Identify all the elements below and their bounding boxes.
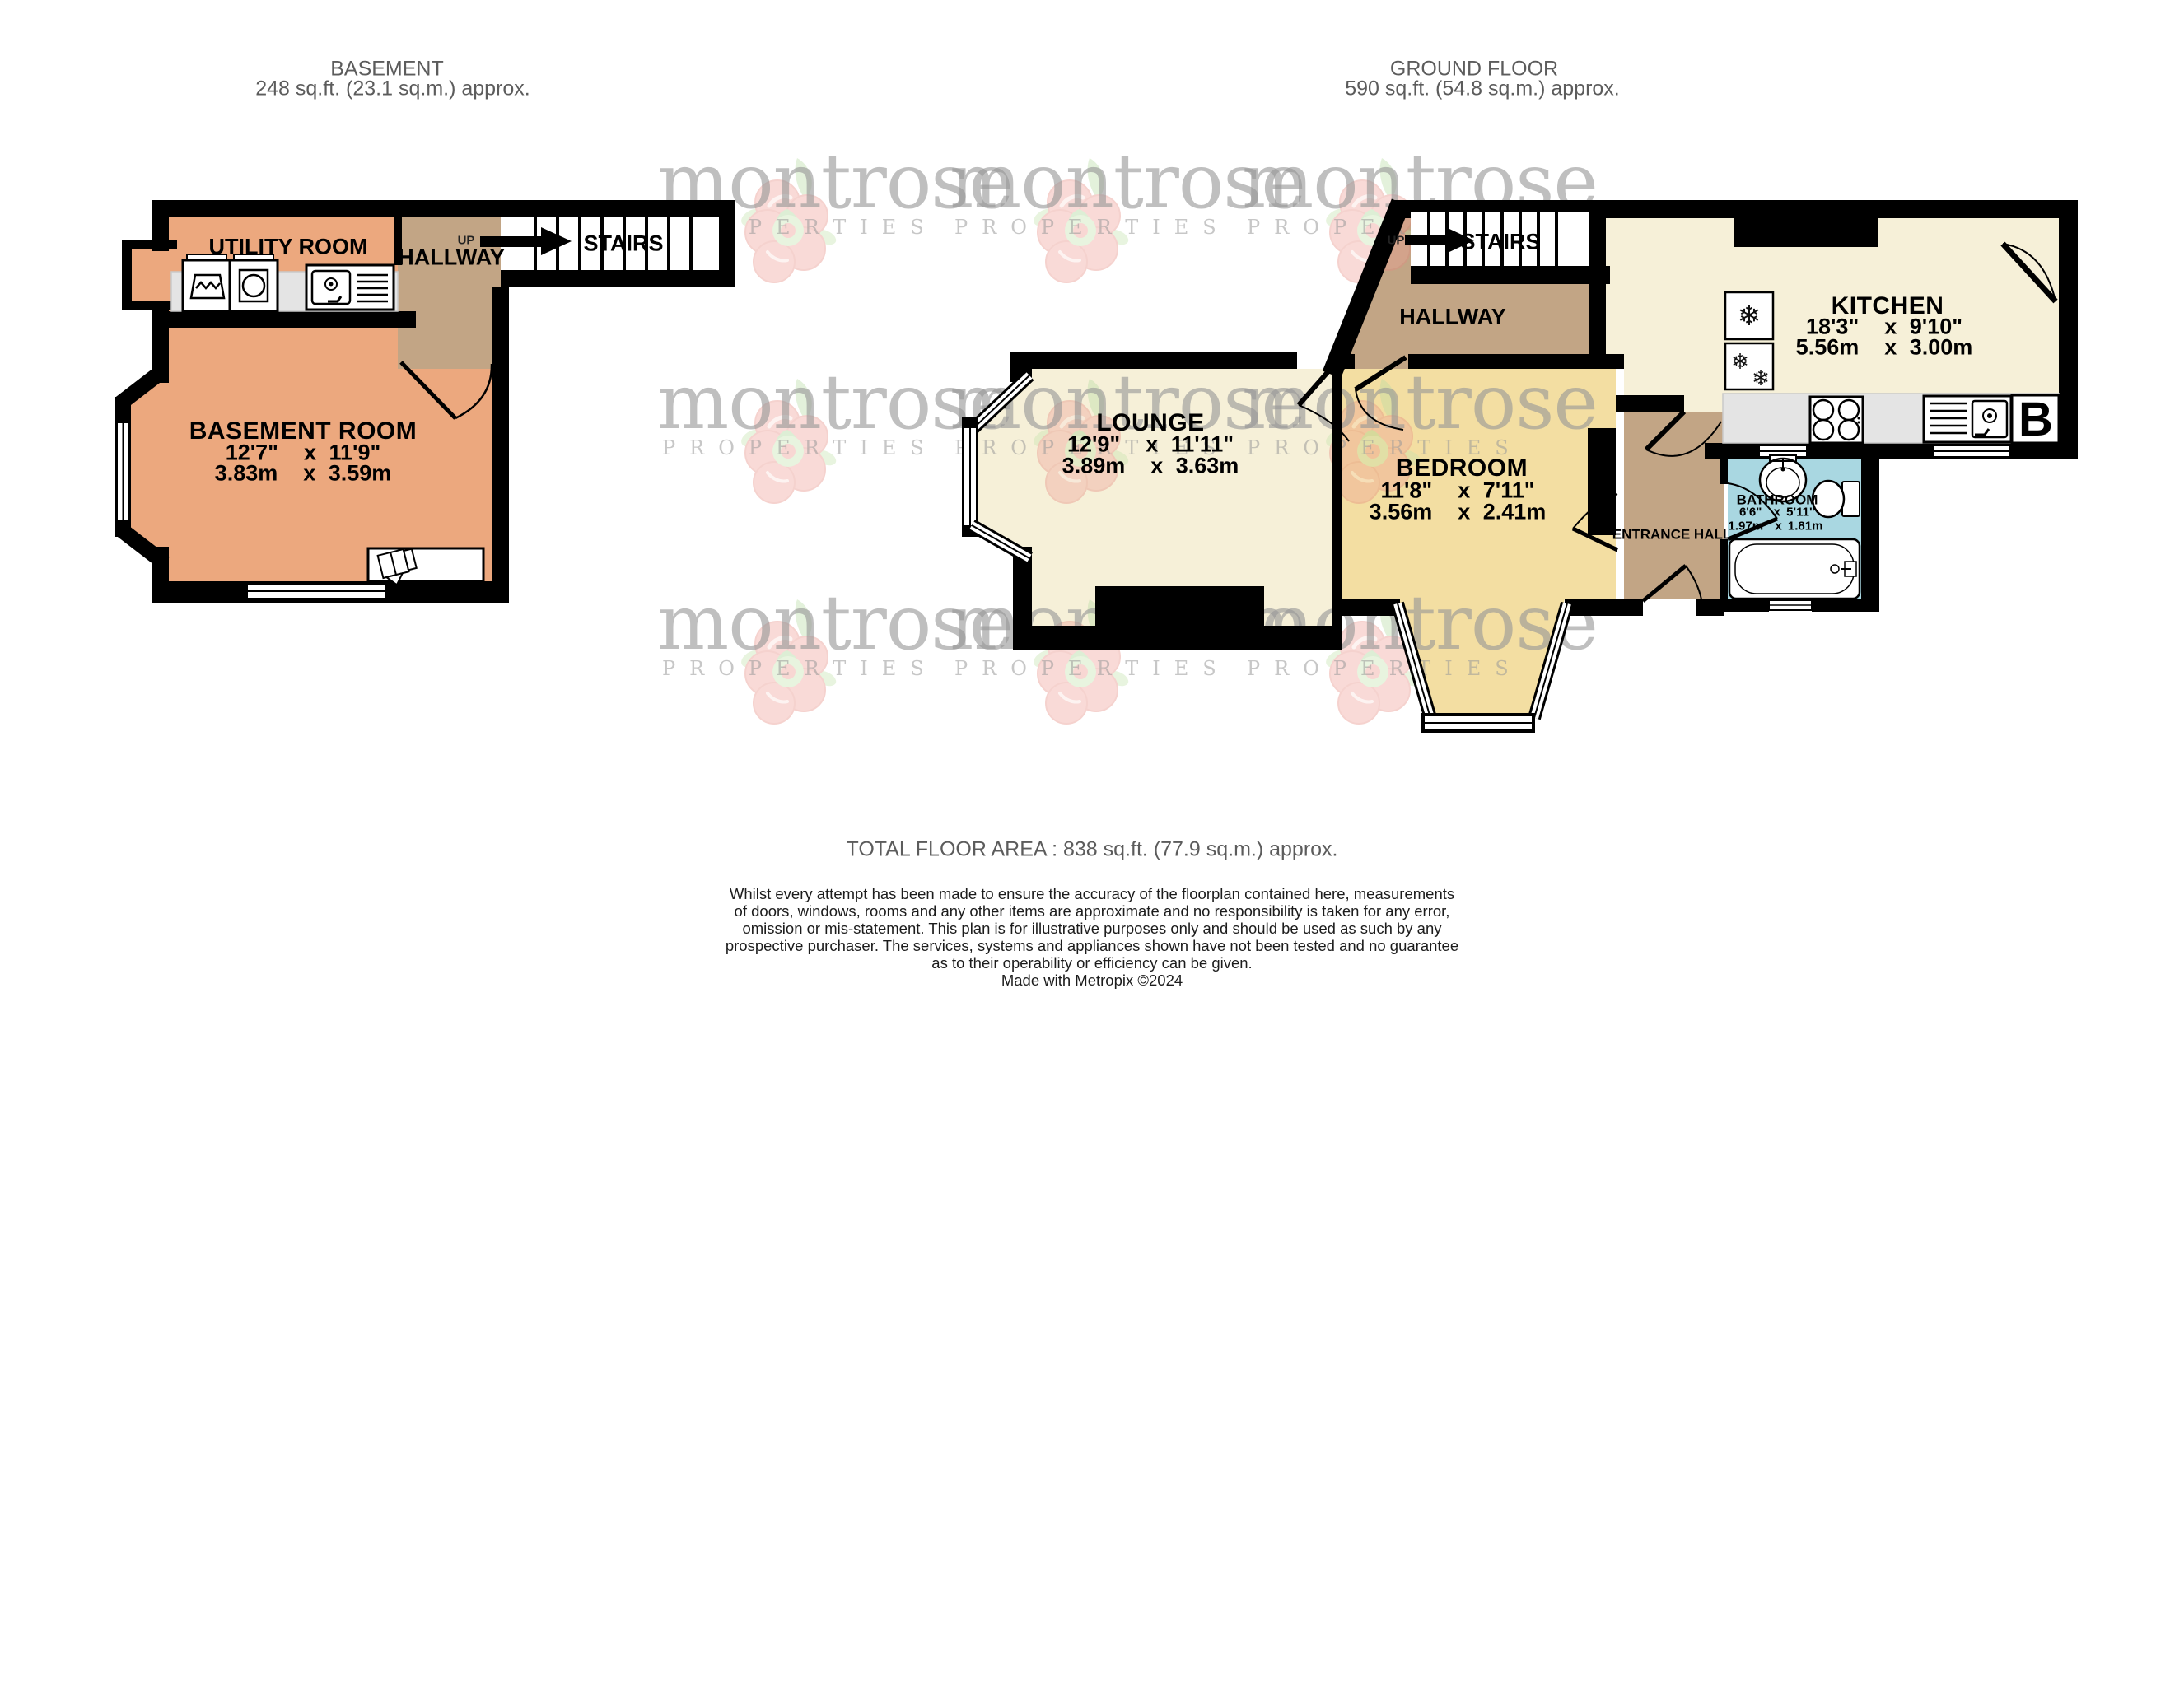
disclaimer-line: Whilst every attempt has been made to en… (730, 885, 1454, 903)
ground-hallway-label: HALLWAY (1399, 306, 1506, 329)
snowflake-icon: ❄ (1731, 351, 1749, 372)
dryer-icon (183, 254, 231, 311)
floorplan-page: montrose PROPERTIES montrose PROPERTIES … (0, 0, 2184, 1687)
bath-icon (1729, 539, 1860, 599)
bathroom-window (1769, 600, 1812, 610)
bedroom-metric: 3.56m x 2.41m (1370, 501, 1547, 524)
disclaimer-line: as to their operability or efficiency ca… (931, 954, 1252, 972)
lounge-metric: 3.89m x 3.63m (1062, 455, 1239, 478)
basement-bay-window (115, 370, 165, 563)
kitchen-corner-door (2003, 244, 2056, 301)
basement-area: 248 sq.ft. (23.1 sq.m.) approx. (255, 79, 530, 100)
snowflake-icon: ❄ (1752, 367, 1770, 389)
basement-room-metric: 3.83m x 3.59m (215, 463, 392, 485)
ground-stairs-label: STAIRS (1460, 231, 1540, 254)
washing-machine-icon (230, 254, 278, 311)
credit-line: Made with Metropix ©2024 (1001, 972, 1183, 990)
ground-area: 590 sq.ft. (54.8 sq.m.) approx. (1345, 79, 1620, 100)
basement-window (247, 585, 385, 599)
basement-unit-icon (368, 548, 483, 588)
boiler-label: B (2018, 396, 2053, 444)
hob-icon (1810, 397, 1863, 443)
disclaimer-line: omission or mis-statement. This plan is … (742, 920, 1441, 938)
disclaimer-line: of doors, windows, rooms and any other i… (735, 902, 1450, 920)
utility-room-label: UTILITY ROOM (209, 236, 368, 259)
total-floor-area: TOTAL FLOOR AREA : 838 sq.ft. (77.9 sq.m… (847, 840, 1338, 860)
kitchen-metric: 5.56m x 3.00m (1796, 337, 1973, 359)
entrance-hall-label: ENTRANCE HALL (1612, 528, 1732, 542)
bedroom-door-arc (1356, 357, 1406, 430)
bedroom-label: BEDROOM (1396, 456, 1528, 481)
utility-sink-icon (306, 265, 394, 310)
lounge-imperial: 12'9" x 11'11" (1067, 434, 1234, 456)
ground-up-label: UP (1388, 235, 1405, 247)
bathroom-imperial: 6'6" x 5'11" (1739, 506, 1815, 519)
basement-hallway-label: HALLWAY (398, 247, 505, 269)
bedroom-imperial: 11'8" x 7'11" (1380, 480, 1534, 502)
basement-stairs-label: STAIRS (583, 233, 663, 255)
toilet-icon (1813, 481, 1860, 517)
lounge-bay-window (962, 375, 1029, 558)
front-door-arc (1643, 566, 1701, 601)
bedroom-bay-window (1398, 603, 1567, 733)
basement-door-arc (401, 362, 492, 418)
disclaimer-line: prospective purchaser. The services, sys… (726, 937, 1458, 955)
snowflake-icon: ❄ (1738, 302, 1762, 330)
hallway-diagonal-wall (1332, 203, 1401, 375)
basement-up-label: UP (458, 235, 475, 247)
bathroom-metric: 1.97m x 1.81m (1729, 520, 1823, 533)
kitchen-sink-icon (1924, 396, 2011, 442)
